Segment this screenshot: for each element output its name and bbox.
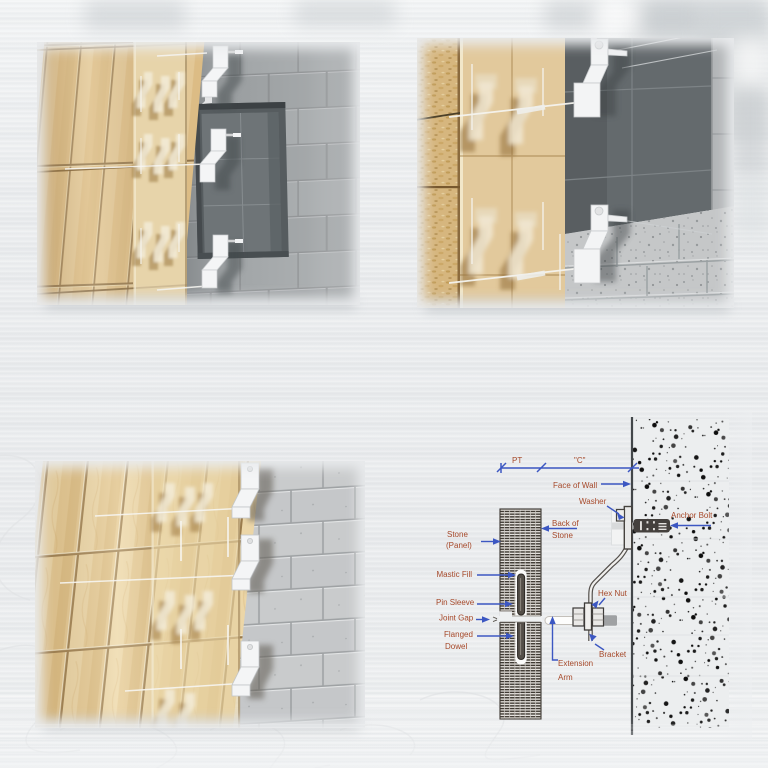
- svg-text:Hex Nut: Hex Nut: [598, 589, 628, 598]
- svg-text:Extension: Extension: [558, 659, 593, 668]
- svg-text:Flanged: Flanged: [444, 630, 473, 639]
- svg-text:Joint Gap: Joint Gap: [439, 614, 474, 623]
- svg-text:Stone: Stone: [447, 530, 468, 539]
- svg-text:Bracket: Bracket: [599, 650, 627, 659]
- svg-text:Stone: Stone: [552, 531, 573, 540]
- svg-text:Dowel: Dowel: [445, 642, 467, 651]
- svg-text:Face of Wall: Face of Wall: [553, 481, 597, 490]
- svg-text:Back of: Back of: [552, 519, 579, 528]
- svg-text:Washer: Washer: [579, 497, 607, 506]
- svg-text:Mastic Fill: Mastic Fill: [437, 570, 473, 579]
- svg-text:Arm: Arm: [558, 673, 573, 682]
- svg-text:Pin Sleeve: Pin Sleeve: [436, 598, 475, 607]
- svg-text:Anchor Bolt: Anchor Bolt: [671, 511, 713, 520]
- svg-text:(Panel): (Panel): [446, 541, 472, 550]
- svg-text:PT: PT: [512, 456, 522, 465]
- svg-text:"C": "C": [574, 456, 586, 465]
